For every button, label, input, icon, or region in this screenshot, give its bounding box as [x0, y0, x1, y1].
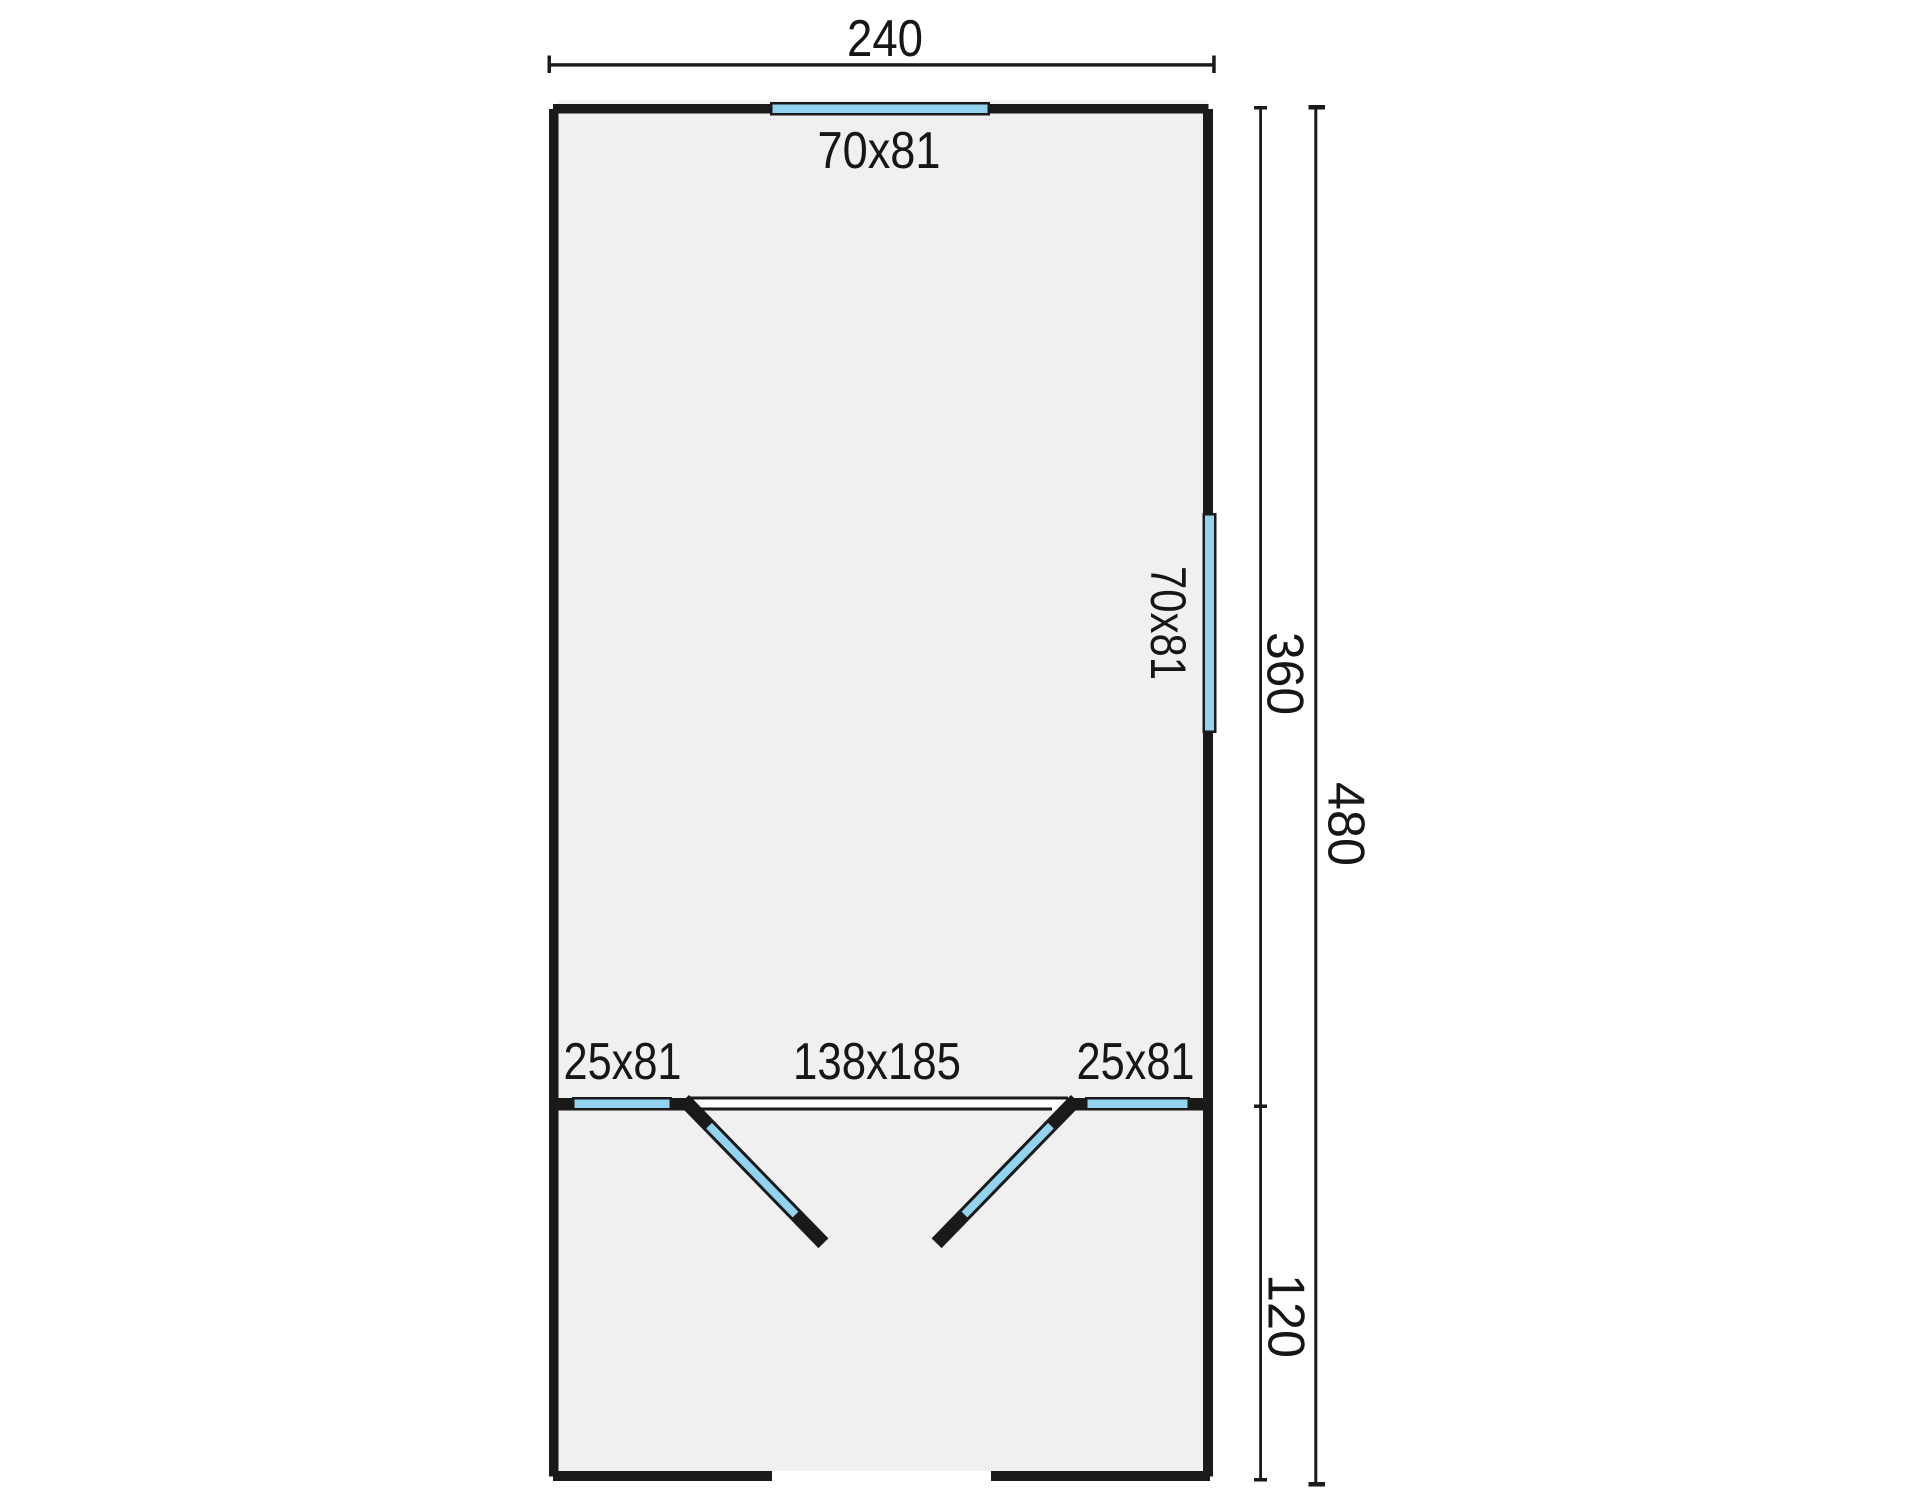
svg-text:360: 360	[1256, 632, 1314, 715]
svg-text:480: 480	[1317, 782, 1375, 866]
svg-text:70x81: 70x81	[818, 122, 941, 180]
svg-text:70x81: 70x81	[1140, 566, 1196, 680]
svg-text:120: 120	[1257, 1274, 1315, 1358]
svg-text:240: 240	[847, 10, 923, 68]
svg-text:25x81: 25x81	[564, 1033, 682, 1091]
svg-text:138x185: 138x185	[793, 1033, 961, 1091]
svg-text:25x81: 25x81	[1077, 1033, 1195, 1091]
